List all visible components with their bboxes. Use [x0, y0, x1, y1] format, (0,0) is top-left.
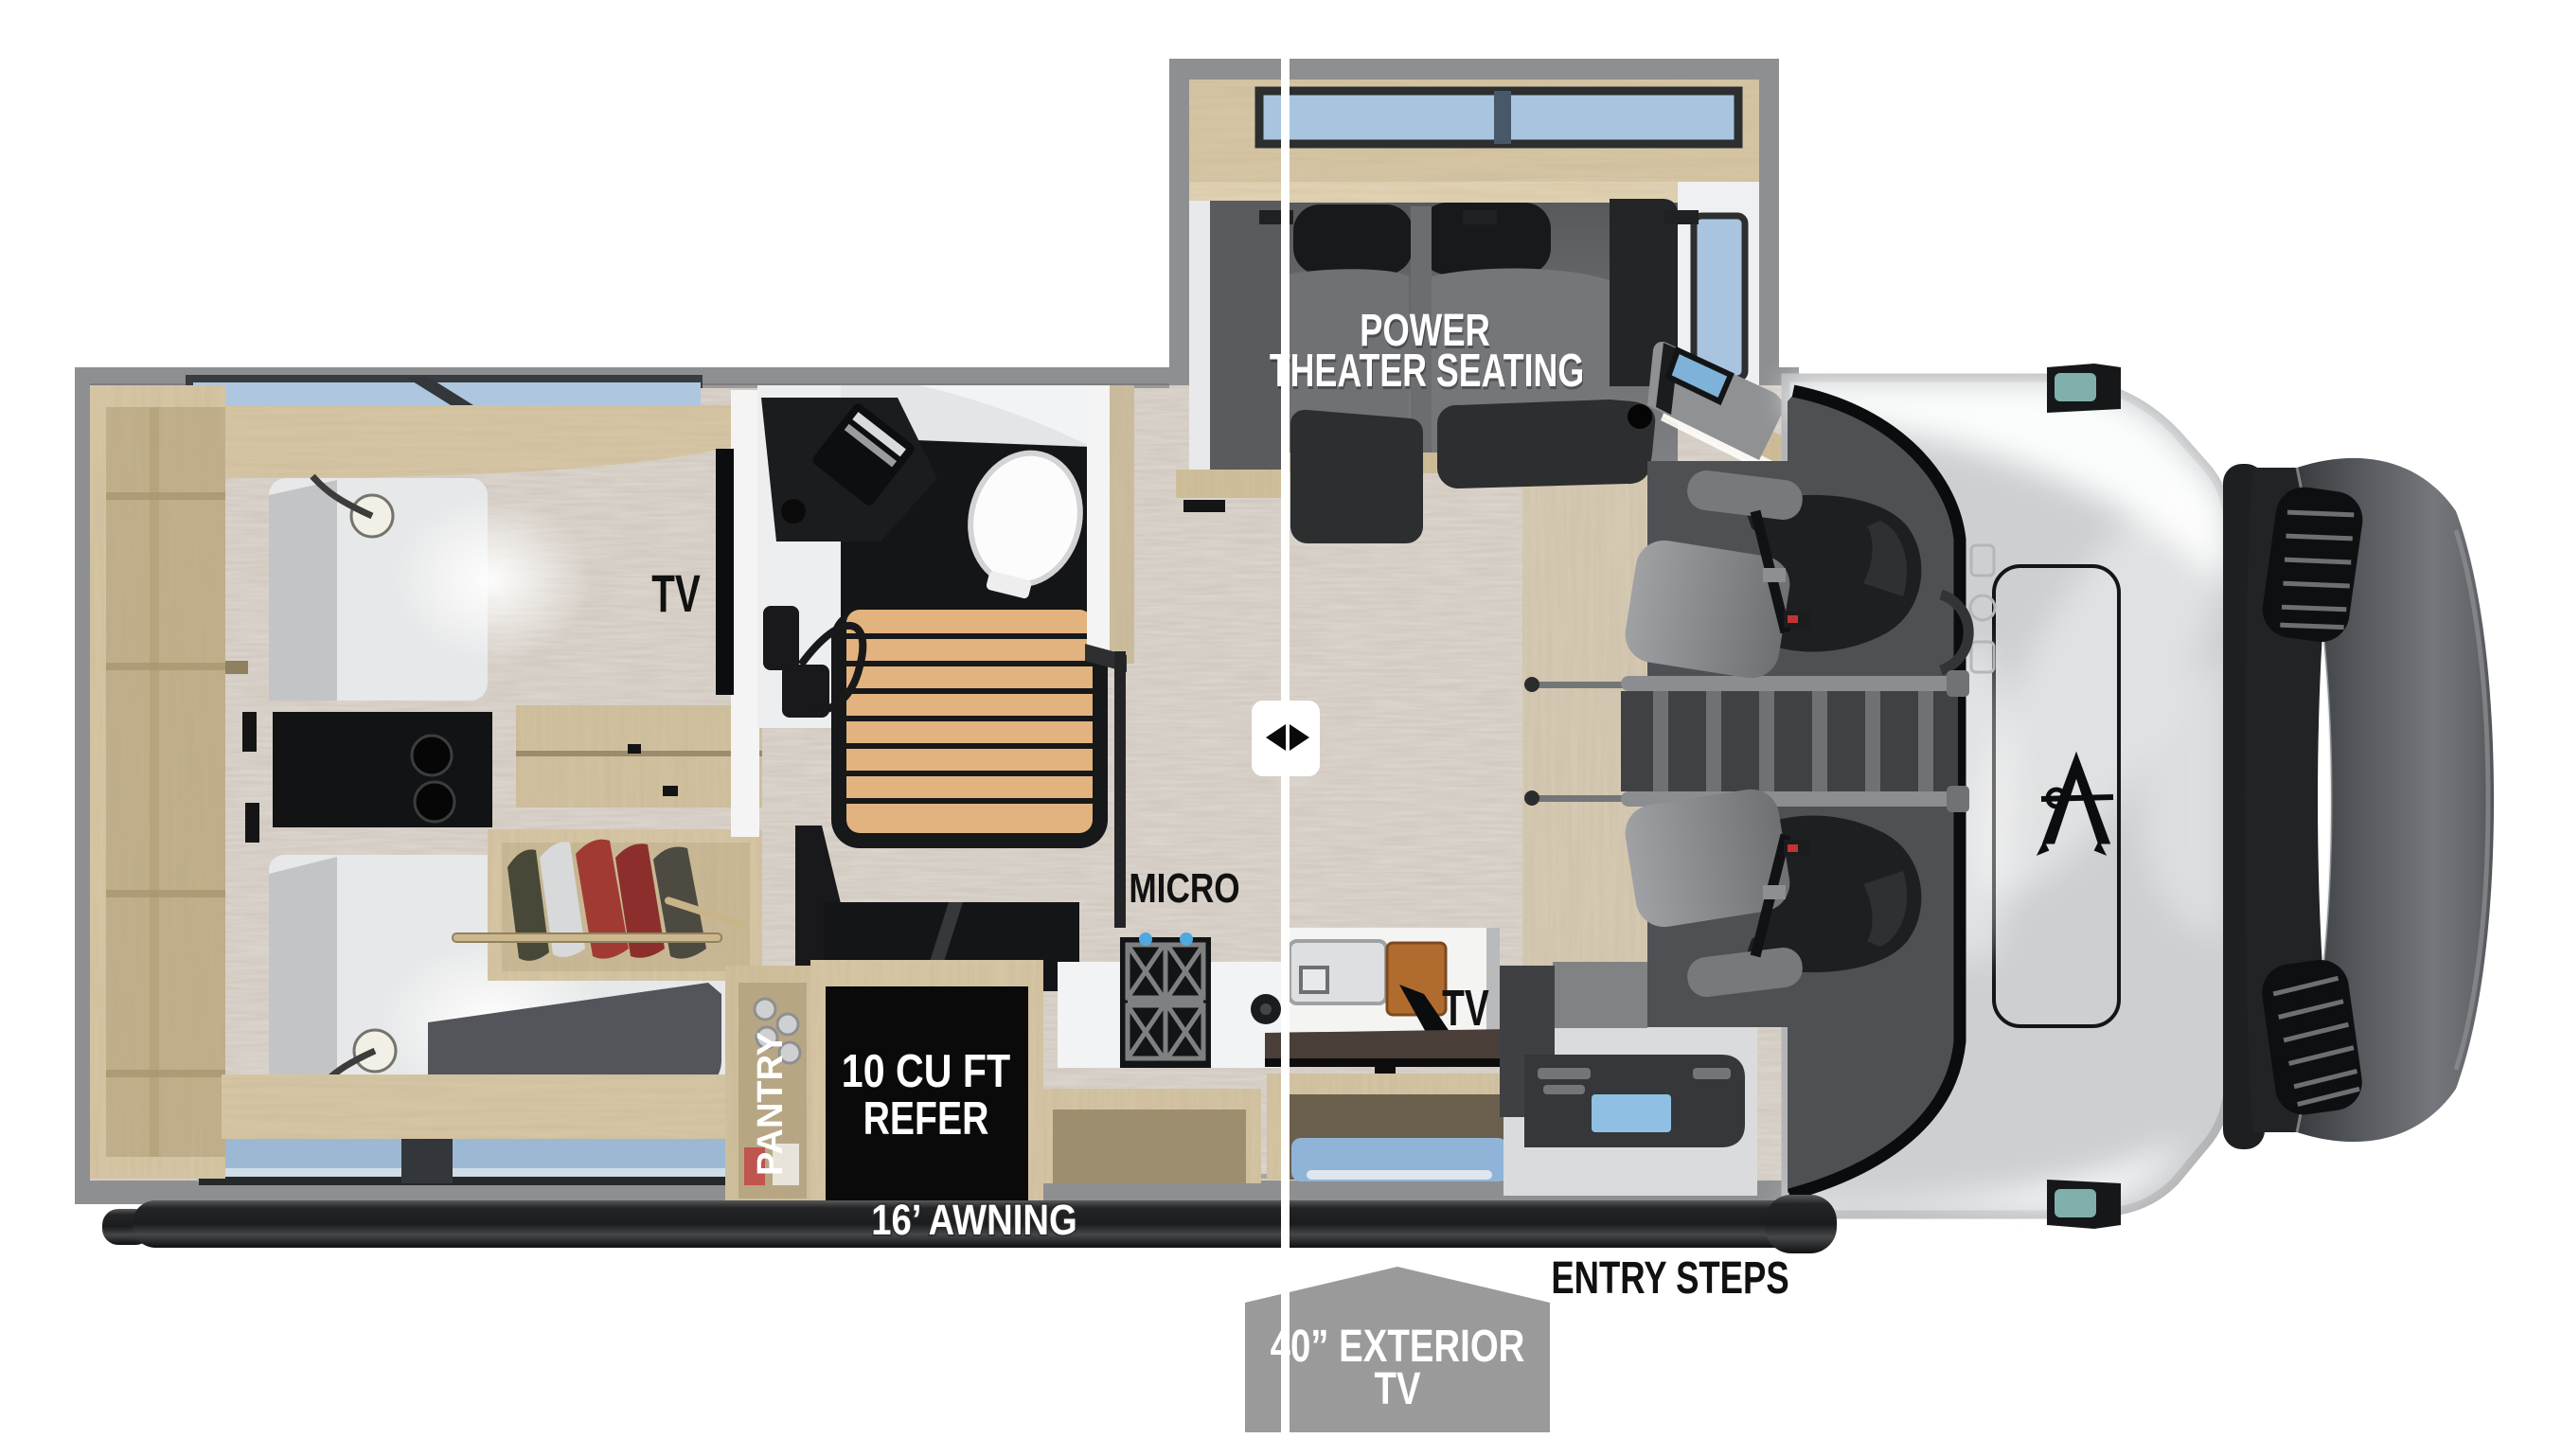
svg-text:REFER: REFER [863, 1093, 989, 1145]
svg-text:PANTRY: PANTRY [751, 1032, 791, 1176]
svg-text:TV: TV [1442, 979, 1489, 1037]
svg-text:10 CU FT: 10 CU FT [842, 1045, 1011, 1097]
svg-text:MICRO: MICRO [1129, 865, 1239, 912]
svg-text:TV: TV [1374, 1364, 1420, 1414]
svg-text:16’ AWNING: 16’ AWNING [871, 1196, 1076, 1244]
svg-text:THEATER SEATING: THEATER SEATING [1270, 346, 1584, 398]
svg-text:ENTRY STEPS: ENTRY STEPS [1551, 1252, 1788, 1304]
svg-text:TV: TV [651, 565, 701, 624]
